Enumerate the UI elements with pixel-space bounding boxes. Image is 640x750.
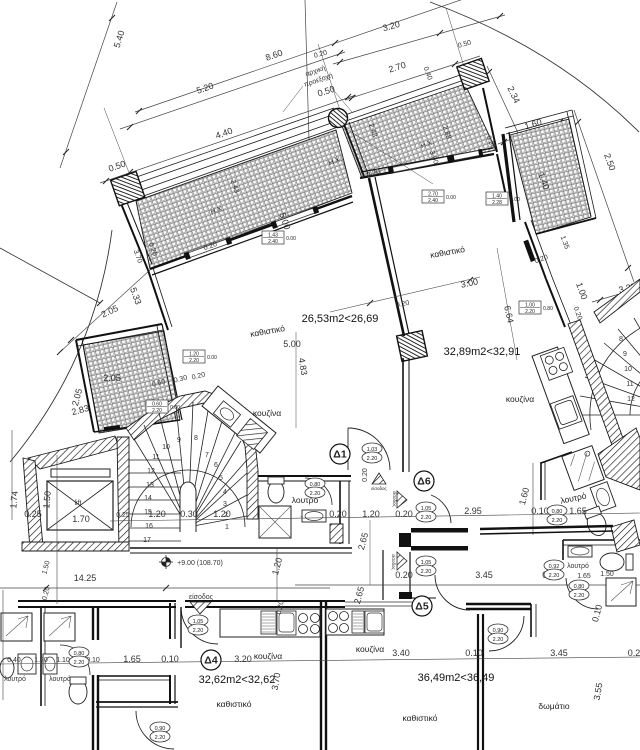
- svg-text:2.20: 2.20: [493, 637, 504, 643]
- svg-text:0.20: 0.20: [362, 468, 369, 482]
- svg-text:11: 11: [152, 454, 159, 461]
- svg-text:2.20: 2.20: [189, 358, 199, 364]
- svg-text:λουτρό: λουτρό: [567, 562, 589, 570]
- svg-text:17: 17: [143, 537, 151, 544]
- svg-text:9: 9: [177, 437, 181, 444]
- svg-text:0.40: 0.40: [7, 657, 21, 664]
- svg-text:2.20: 2.20: [310, 491, 321, 497]
- svg-text:3.45: 3.45: [550, 648, 568, 658]
- svg-text:0.90: 0.90: [155, 726, 166, 732]
- svg-text:2.20: 2.20: [421, 515, 432, 521]
- svg-text:2.70: 2.70: [428, 192, 438, 198]
- svg-text:λουτρό: λουτρό: [4, 675, 26, 683]
- svg-text:κουζίνα: κουζίνα: [253, 408, 281, 418]
- svg-text:1.40: 1.40: [492, 194, 502, 200]
- svg-text:2.20: 2.20: [421, 569, 432, 575]
- svg-text:Δ4: Δ4: [204, 655, 218, 667]
- svg-text:6: 6: [214, 462, 218, 469]
- svg-text:1.20: 1.20: [148, 509, 166, 519]
- svg-text:8: 8: [619, 336, 623, 343]
- svg-text:1.00: 1.00: [525, 303, 535, 309]
- svg-text:1.65: 1.65: [577, 573, 591, 580]
- svg-text:3: 3: [223, 501, 227, 508]
- svg-text:2.05: 2.05: [103, 373, 121, 383]
- svg-text:10: 10: [162, 444, 170, 451]
- svg-text:Δ6: Δ6: [417, 476, 431, 488]
- svg-text:14: 14: [144, 495, 152, 502]
- svg-text:3.40: 3.40: [392, 648, 410, 658]
- svg-text:δωμάτιο: δωμάτιο: [538, 701, 569, 711]
- svg-text:13: 13: [146, 482, 154, 489]
- svg-text:λουτρό: λουτρό: [49, 675, 71, 683]
- svg-text:0.60: 0.60: [152, 402, 162, 408]
- svg-text:+9.00 (108.70): +9.00 (108.70): [177, 560, 223, 567]
- svg-text:36,49m2<36,49: 36,49m2<36,49: [418, 672, 495, 684]
- svg-text:3.45: 3.45: [475, 570, 493, 580]
- svg-text:είσοδος: είσοδος: [392, 491, 397, 507]
- svg-text:είσοδος: είσοδος: [391, 554, 396, 570]
- svg-text:1.20: 1.20: [34, 657, 48, 664]
- svg-text:Δ5: Δ5: [415, 601, 429, 613]
- svg-text:12: 12: [627, 396, 635, 403]
- svg-text:1.05: 1.05: [421, 560, 432, 566]
- svg-text:2.40: 2.40: [428, 198, 438, 204]
- svg-text:Δ1: Δ1: [333, 449, 347, 461]
- svg-text:0.00: 0.00: [286, 236, 296, 242]
- svg-text:0.80: 0.80: [552, 509, 563, 515]
- svg-text:κουζίνα: κουζίνα: [506, 394, 534, 404]
- svg-text:16: 16: [145, 523, 153, 530]
- svg-text:1: 1: [225, 524, 229, 531]
- svg-text:2.20: 2.20: [552, 518, 563, 524]
- svg-text:0.30: 0.30: [180, 509, 198, 519]
- svg-text:1.20: 1.20: [189, 352, 199, 358]
- svg-text:0.80: 0.80: [310, 482, 321, 488]
- svg-text:0.25: 0.25: [24, 509, 42, 519]
- svg-text:9: 9: [623, 351, 627, 358]
- svg-text:32,89m2<32,91: 32,89m2<32,91: [444, 346, 521, 358]
- svg-text:0.80: 0.80: [74, 651, 85, 657]
- svg-text:32,62m2<32,62: 32,62m2<32,62: [199, 674, 276, 686]
- svg-text:1.50: 1.50: [600, 571, 614, 578]
- svg-text:1.70: 1.70: [72, 514, 90, 524]
- svg-text:2.20: 2.20: [549, 573, 560, 579]
- svg-text:κουζίνα: κουζίνα: [356, 644, 384, 654]
- svg-text:καθιστικό: καθιστικό: [216, 699, 251, 709]
- svg-text:0.00: 0.00: [510, 197, 520, 203]
- svg-text:0.20: 0.20: [395, 570, 413, 580]
- svg-text:1.20: 1.20: [213, 509, 231, 519]
- svg-text:2.20: 2.20: [574, 593, 585, 599]
- svg-text:1.05: 1.05: [421, 506, 432, 512]
- svg-text:14.25: 14.25: [74, 573, 97, 583]
- svg-text:7: 7: [205, 452, 209, 459]
- svg-text:1.05: 1.05: [193, 619, 204, 625]
- svg-text:2.20: 2.20: [367, 456, 378, 462]
- svg-text:είσοδος: είσοδος: [371, 486, 387, 491]
- svg-text:2.20: 2.20: [152, 408, 162, 414]
- svg-text:2.20: 2.20: [525, 309, 535, 315]
- svg-text:0.60: 0.60: [170, 405, 180, 411]
- svg-text:4: 4: [223, 489, 227, 496]
- svg-text:0.80: 0.80: [574, 584, 585, 590]
- svg-text:0.92: 0.92: [549, 564, 560, 570]
- svg-text:0.80: 0.80: [543, 306, 553, 312]
- svg-text:26,53m2<26,69: 26,53m2<26,69: [302, 313, 379, 325]
- svg-text:2.95: 2.95: [464, 506, 482, 516]
- svg-text:12: 12: [147, 468, 155, 475]
- svg-text:1.03: 1.03: [367, 447, 378, 453]
- svg-text:0.20: 0.20: [395, 509, 413, 519]
- svg-text:0.10: 0.10: [465, 648, 483, 658]
- svg-text:2.20: 2.20: [74, 660, 85, 666]
- svg-text:1.20: 1.20: [362, 509, 380, 519]
- svg-text:5.00: 5.00: [283, 339, 301, 349]
- svg-text:1.65: 1.65: [569, 506, 587, 516]
- svg-text:2.40: 2.40: [268, 239, 278, 245]
- svg-text:1.74: 1.74: [8, 491, 19, 509]
- svg-text:10: 10: [624, 366, 632, 373]
- svg-text:2.20: 2.20: [155, 735, 166, 741]
- svg-text:11: 11: [626, 381, 633, 388]
- svg-text:1.43: 1.43: [268, 233, 278, 239]
- svg-text:1.10: 1.10: [56, 657, 70, 664]
- svg-text:8: 8: [194, 435, 198, 442]
- svg-text:2.28: 2.28: [492, 200, 502, 206]
- svg-text:0.25: 0.25: [116, 512, 130, 519]
- svg-text:κουζίνα: κουζίνα: [254, 651, 282, 661]
- svg-text:1.50: 1.50: [41, 491, 52, 509]
- svg-text:0.00: 0.00: [446, 195, 456, 201]
- svg-text:είσοδος: είσοδος: [189, 593, 214, 601]
- svg-text:καθιστικό: καθιστικό: [402, 713, 437, 723]
- svg-text:2.20: 2.20: [193, 628, 204, 634]
- svg-text:0.90: 0.90: [493, 628, 504, 634]
- svg-text:3.20: 3.20: [234, 654, 252, 664]
- svg-text:0.00: 0.00: [207, 355, 217, 361]
- svg-text:0.2: 0.2: [628, 648, 640, 658]
- svg-text:lift: lift: [75, 500, 82, 507]
- svg-text:5: 5: [219, 475, 223, 482]
